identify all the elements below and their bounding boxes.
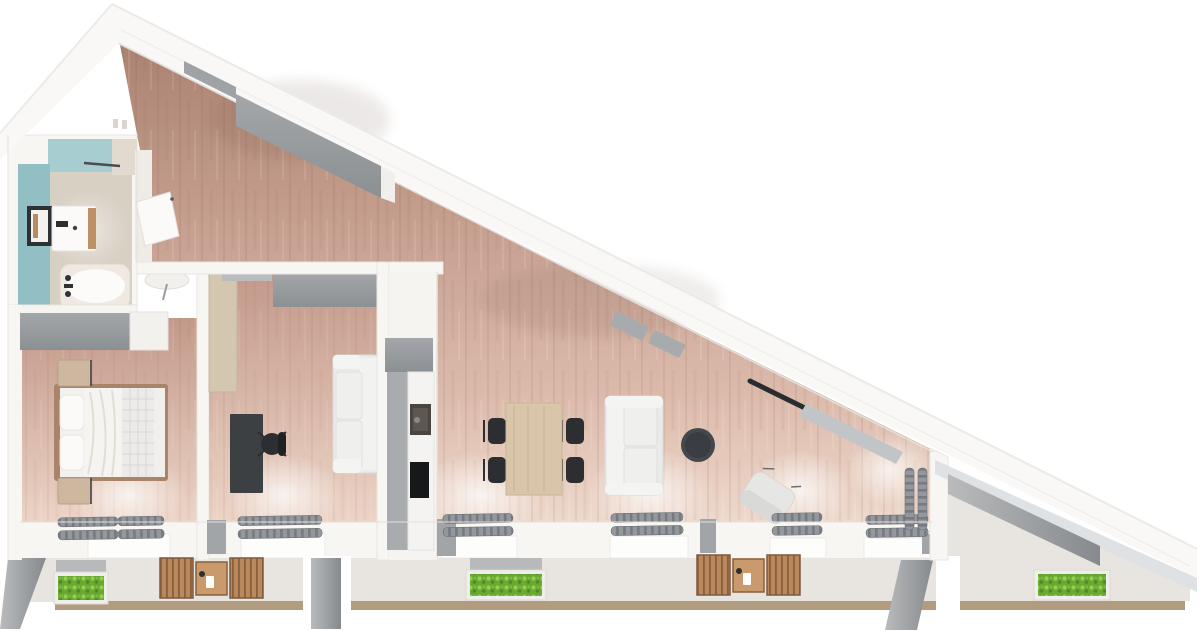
planter-middle <box>466 558 546 600</box>
bedroom-study-wall <box>197 262 209 560</box>
light-switch <box>122 120 127 129</box>
washing-machine-vanity <box>52 206 96 251</box>
bathroom-entry-floor <box>112 139 137 175</box>
cooktop <box>410 462 429 498</box>
nightstand-top <box>58 360 91 386</box>
bathroom-mirror <box>27 206 52 246</box>
patio-set-left <box>160 558 263 598</box>
floor-plan-svg <box>0 0 1200 631</box>
sofa-back <box>360 358 378 470</box>
bed-runner <box>154 388 165 477</box>
kitchen-upper-cabinet <box>385 338 433 372</box>
wall-stub <box>207 520 226 554</box>
pillow <box>60 395 84 430</box>
kitchen-sink <box>410 404 431 435</box>
office-chair <box>258 432 286 456</box>
coffee-table-top <box>685 432 711 458</box>
bathroom <box>8 135 137 315</box>
balcony-divider-left <box>311 558 341 629</box>
sofa-armrest <box>333 459 361 473</box>
wall-stub <box>700 519 716 553</box>
kitchen <box>377 262 437 560</box>
sofa-cushion <box>336 372 362 419</box>
planter-left <box>54 560 108 604</box>
study-door-open <box>209 268 237 392</box>
nightstand-bottom <box>58 478 91 504</box>
bedroom-left-wall <box>8 305 22 560</box>
living-sofa <box>605 396 663 495</box>
pillow <box>60 435 84 470</box>
door-handle <box>170 197 174 201</box>
washer-control-panel <box>56 221 68 227</box>
sofa-armrest <box>605 483 663 495</box>
balcony-gap-right <box>936 556 960 630</box>
desk <box>230 414 263 493</box>
study-wall-cabinet <box>273 273 378 307</box>
living-window-sill-2 <box>610 536 688 558</box>
wall-stub <box>437 519 456 556</box>
study <box>197 262 378 560</box>
sofa-armrest <box>333 355 361 369</box>
sofa-cushion <box>624 403 657 446</box>
washer-knob <box>73 226 77 230</box>
bathroom-teal-wall-top <box>48 139 116 172</box>
sofa-back <box>607 399 624 492</box>
bedroom-dresser <box>130 312 168 350</box>
vanity-wood-side <box>88 208 96 249</box>
floor-plan-render <box>0 0 1200 631</box>
sofa-armrest <box>605 396 663 408</box>
patio-set-middle <box>697 555 800 595</box>
double-bed <box>54 384 168 481</box>
light-switch <box>113 119 118 128</box>
planter-right <box>1034 570 1110 600</box>
kitchen-tall-unit <box>387 372 408 550</box>
study-sofa <box>333 355 378 473</box>
bedroom-wardrobe <box>20 313 130 350</box>
bathtub <box>60 264 130 309</box>
kitchen-counter <box>408 372 434 550</box>
balcony-edge-strip <box>55 601 1185 610</box>
